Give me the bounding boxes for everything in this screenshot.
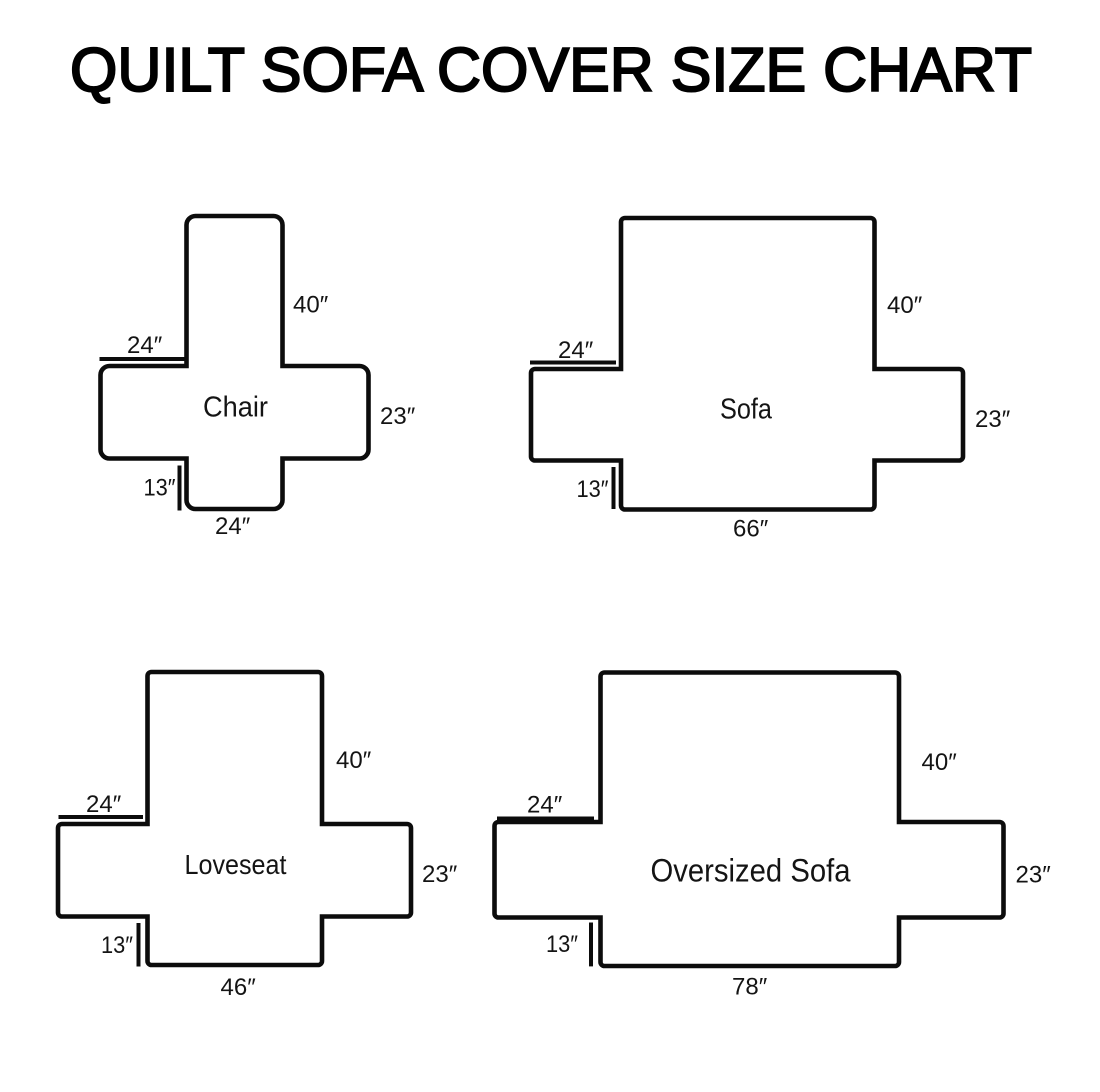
svg-text:40″: 40″ [293,292,329,319]
svg-text:23″: 23″ [1016,862,1052,889]
svg-text:24″: 24″ [127,332,163,359]
svg-text:13″: 13″ [101,932,133,959]
svg-text:24″: 24″ [558,337,594,364]
svg-text:QUILT SOFA COVER SIZE CHART: QUILT SOFA COVER SIZE CHART [70,36,1032,105]
svg-text:13″: 13″ [546,931,578,958]
svg-text:24″: 24″ [215,513,251,540]
svg-text:66″: 66″ [733,516,769,543]
svg-text:13″: 13″ [144,475,176,502]
svg-text:23″: 23″ [975,406,1011,433]
svg-text:Sofa: Sofa [720,394,772,426]
svg-text:40″: 40″ [887,292,923,319]
svg-text:78″: 78″ [732,974,768,1001]
svg-text:Chair: Chair [203,392,268,424]
svg-text:46″: 46″ [221,974,257,1001]
svg-text:13″: 13″ [577,476,609,503]
svg-text:24″: 24″ [86,791,122,818]
svg-text:24″: 24″ [527,792,563,819]
svg-text:23″: 23″ [422,861,458,888]
svg-text:23″: 23″ [380,403,416,430]
svg-text:40″: 40″ [336,747,372,774]
svg-text:Loveseat: Loveseat [185,849,287,880]
svg-text:Oversized Sofa: Oversized Sofa [651,853,851,889]
svg-text:40″: 40″ [922,749,958,776]
